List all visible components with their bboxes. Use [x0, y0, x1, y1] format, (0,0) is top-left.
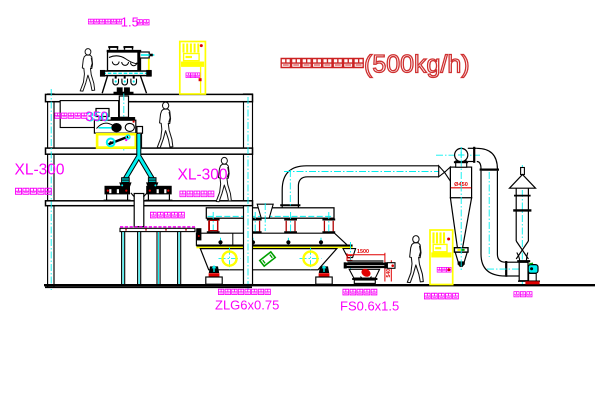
svg-text:1.5: 1.5 — [121, 14, 139, 29]
svg-text:350: 350 — [85, 109, 108, 124]
svg-text:FS0.6x1.5: FS0.6x1.5 — [340, 299, 399, 314]
svg-text:540: 540 — [386, 269, 392, 278]
svg-text:ZLG6x0.75: ZLG6x0.75 — [215, 298, 279, 313]
svg-text:1500: 1500 — [357, 249, 369, 255]
svg-text:XL-300: XL-300 — [15, 162, 65, 179]
svg-text:(500kg/h): (500kg/h) — [364, 51, 470, 79]
svg-text:XL-300: XL-300 — [178, 166, 228, 183]
